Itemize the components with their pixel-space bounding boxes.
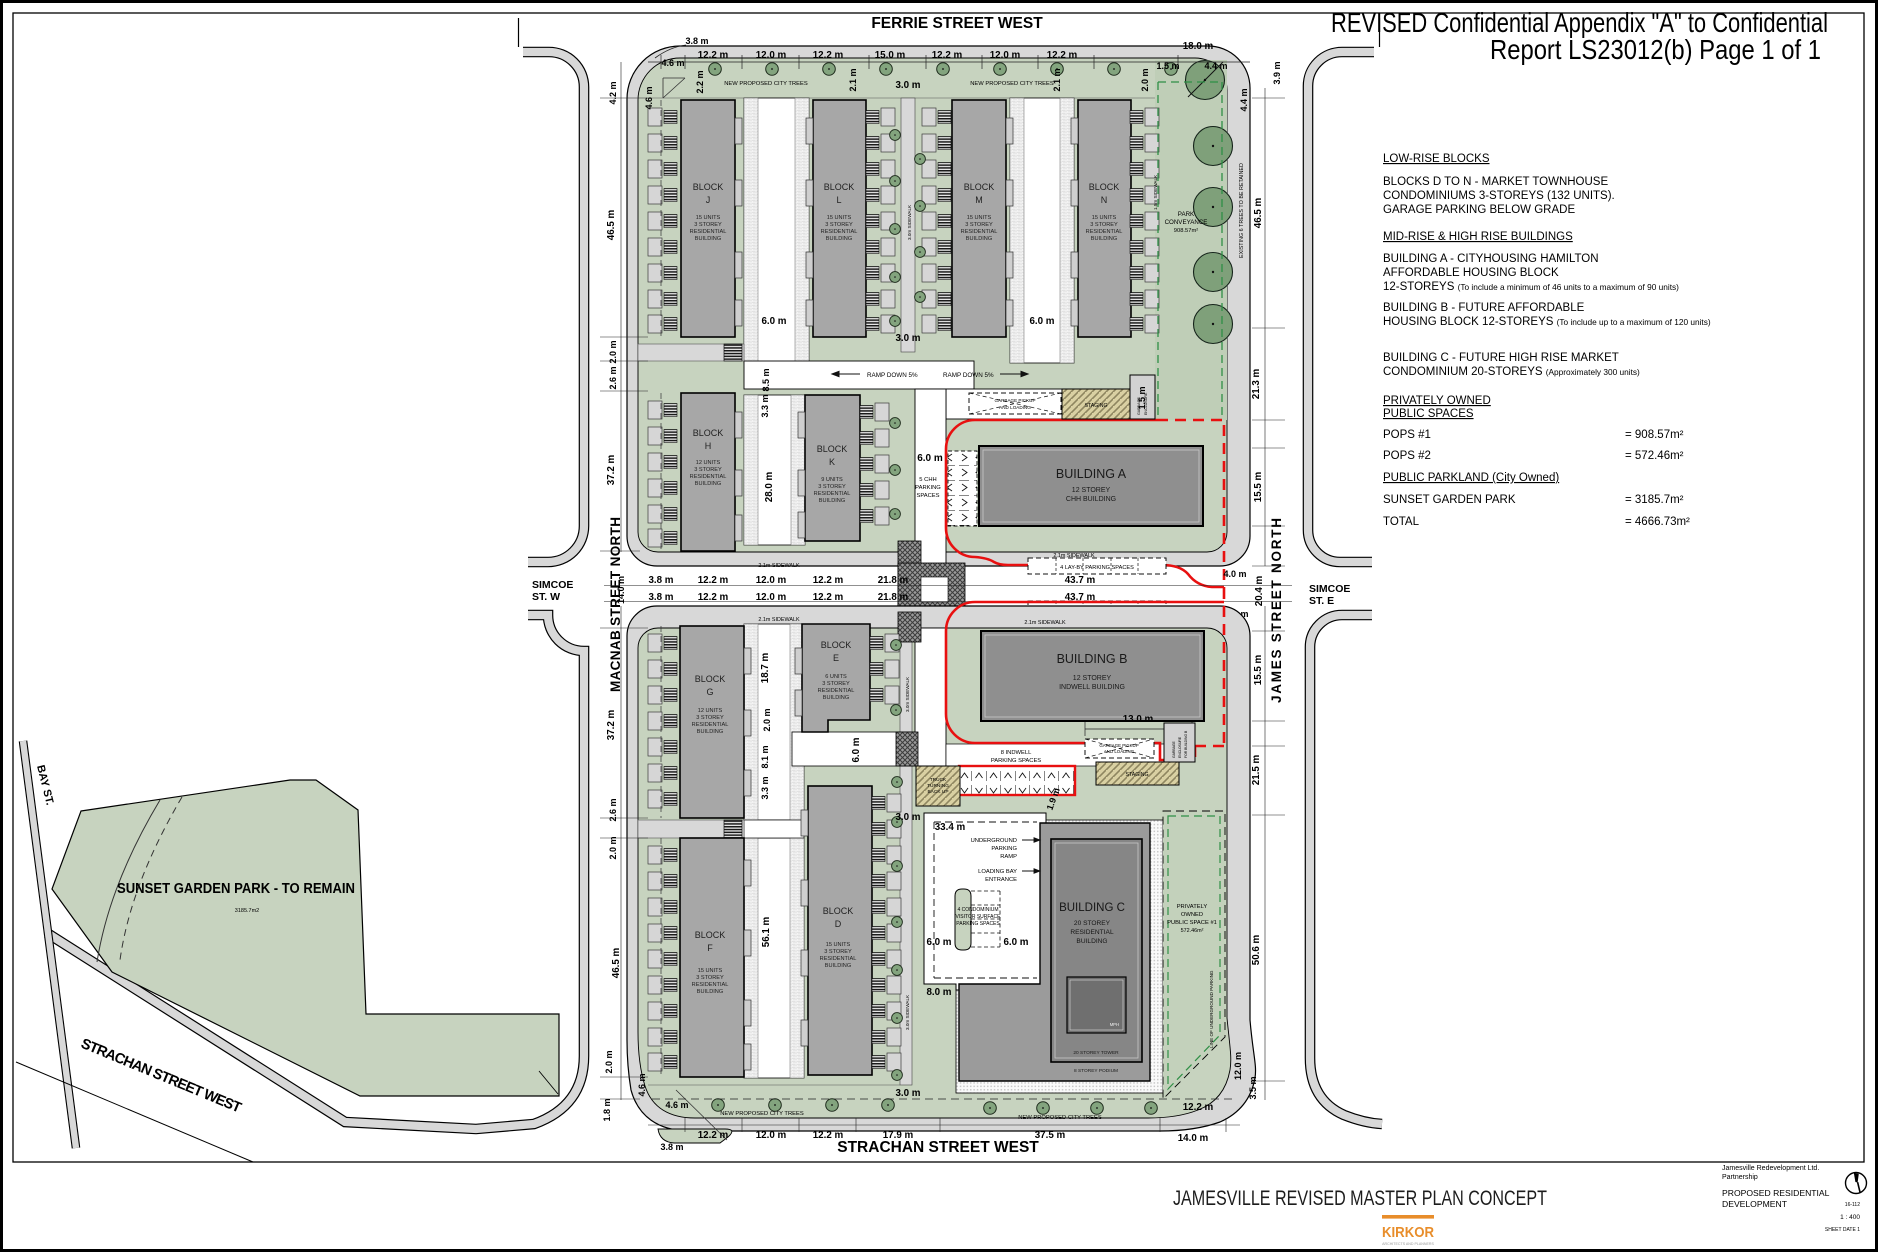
svg-text:CONVEYANCE: CONVEYANCE <box>1165 219 1208 226</box>
svg-text:21.3 m: 21.3 m <box>1251 368 1262 399</box>
svg-text:FOR BUILDING B: FOR BUILDING B <box>1184 730 1188 758</box>
svg-text:BUILDING: BUILDING <box>697 729 723 735</box>
svg-text:6.0 m: 6.0 m <box>917 453 943 464</box>
svg-text:12-STOREYS (To include a minim: 12-STOREYS (To include a minimum of 46 u… <box>1383 281 1679 293</box>
svg-text:3.0 m: 3.0 m <box>895 80 920 91</box>
svg-text:20 STOREY TOWER: 20 STOREY TOWER <box>1073 1050 1119 1056</box>
svg-text:6 UNITS: 6 UNITS <box>825 674 847 680</box>
svg-text:8.5 m: 8.5 m <box>761 368 771 391</box>
svg-text:PUBLIC SPACES: PUBLIC SPACES <box>1383 408 1474 420</box>
svg-text:RAMP DOWN 5%: RAMP DOWN 5% <box>943 372 994 379</box>
svg-text:9 UNITS: 9 UNITS <box>821 477 843 483</box>
svg-text:ENTRANCE: ENTRANCE <box>985 877 1017 883</box>
svg-text:RESIDENTIAL: RESIDENTIAL <box>814 491 851 497</box>
svg-text:4 CONDOMINIUM: 4 CONDOMINIUM <box>957 907 998 913</box>
svg-text:SIMCOE: SIMCOE <box>1309 583 1350 595</box>
svg-text:BUILDING: BUILDING <box>825 963 851 969</box>
svg-text:37.5 m: 37.5 m <box>1035 1130 1066 1141</box>
svg-text:BUILDING: BUILDING <box>1091 236 1117 242</box>
svg-text:15.5 m: 15.5 m <box>1253 654 1264 685</box>
svg-text:3.0m SIDEWALK: 3.0m SIDEWALK <box>907 204 912 240</box>
svg-text:2.1m SIDEWALK: 2.1m SIDEWALK <box>758 617 800 623</box>
svg-text:3 STOREY: 3 STOREY <box>696 975 724 981</box>
svg-text:POPS #2: POPS #2 <box>1383 450 1431 462</box>
svg-text:14.0 m: 14.0 m <box>616 576 626 604</box>
svg-text:SUNSET GARDEN PARK - TO REMAIN: SUNSET GARDEN PARK - TO REMAIN <box>117 881 355 897</box>
svg-text:6.0 m: 6.0 m <box>1029 316 1054 327</box>
svg-text:HOUSING BLOCK 12-STOREYS (To i: HOUSING BLOCK 12-STOREYS (To include up … <box>1383 316 1711 328</box>
svg-text:MPH: MPH <box>1110 1022 1119 1027</box>
svg-text:2.1 m: 2.1 m <box>1052 68 1062 91</box>
svg-text:3 STOREY: 3 STOREY <box>822 681 850 687</box>
svg-text:12.2 m: 12.2 m <box>698 575 729 586</box>
svg-text:TOTAL: TOTAL <box>1383 516 1420 528</box>
svg-text:POPS #1: POPS #1 <box>1383 429 1431 441</box>
svg-text:J: J <box>706 195 711 205</box>
svg-text:= 908.57m²: = 908.57m² <box>1625 429 1684 441</box>
svg-text:BLOCK: BLOCK <box>693 428 724 438</box>
svg-text:BLOCKS D TO N - MARKET TOWNHOU: BLOCKS D TO N - MARKET TOWNHOUSE <box>1383 176 1608 188</box>
svg-text:H: H <box>705 441 712 451</box>
svg-text:2.0 m: 2.0 m <box>604 1050 614 1073</box>
svg-text:2.1m SIDEWALK: 2.1m SIDEWALK <box>1024 620 1066 626</box>
svg-text:6.0 m: 6.0 m <box>761 316 786 327</box>
svg-text:AND LOADING: AND LOADING <box>1104 749 1135 754</box>
svg-text:BUILDING: BUILDING <box>695 481 721 487</box>
svg-text:15.5 m: 15.5 m <box>1253 471 1264 502</box>
svg-text:2.0 m: 2.0 m <box>608 340 618 363</box>
svg-text:3.3 m: 3.3 m <box>760 394 770 417</box>
svg-text:21.8 m: 21.8 m <box>878 575 909 586</box>
svg-text:15 UNITS: 15 UNITS <box>826 942 851 948</box>
svg-text:3.8 m: 3.8 m <box>648 592 673 603</box>
svg-text:3.8 m: 3.8 m <box>660 1142 683 1152</box>
svg-text:RESIDENTIAL: RESIDENTIAL <box>820 956 857 962</box>
svg-text:STAGING: STAGING <box>1126 772 1149 778</box>
svg-text:DEVELOPMENT: DEVELOPMENT <box>1722 1199 1788 1209</box>
svg-text:BLOCK: BLOCK <box>824 182 855 192</box>
svg-text:1.5 m: 1.5 m <box>1156 61 1179 71</box>
svg-text:GARBAGE: GARBAGE <box>1172 740 1176 758</box>
svg-text:CHH BUILDING: CHH BUILDING <box>1066 496 1116 503</box>
svg-text:L: L <box>836 195 841 205</box>
svg-text:RESIDENTIAL: RESIDENTIAL <box>692 722 729 728</box>
svg-text:BLOCK: BLOCK <box>693 182 724 192</box>
svg-text:2.0 m: 2.0 m <box>762 708 772 731</box>
svg-text:3 STOREY: 3 STOREY <box>824 949 852 955</box>
svg-text:M: M <box>975 195 983 205</box>
svg-text:3.9 m: 3.9 m <box>1272 61 1282 84</box>
svg-text:BLOCK: BLOCK <box>821 640 852 650</box>
svg-text:37.2 m: 37.2 m <box>606 454 617 485</box>
svg-text:RESIDENTIAL: RESIDENTIAL <box>690 474 727 480</box>
svg-text:3185.7m2: 3185.7m2 <box>235 908 259 914</box>
svg-text:ENCLOSURE: ENCLOSURE <box>1178 736 1182 758</box>
svg-text:2.0 m: 2.0 m <box>608 836 618 859</box>
svg-text:12.0 m: 12.0 m <box>990 50 1021 61</box>
svg-text:CONDOMINIUM 20-STOREYS (Approx: CONDOMINIUM 20-STOREYS (Approximately 30… <box>1383 366 1640 378</box>
svg-text:BLOCK: BLOCK <box>695 930 726 940</box>
svg-text:N: N <box>1101 195 1108 205</box>
svg-text:20.4 m: 20.4 m <box>1254 575 1265 606</box>
svg-text:15 UNITS: 15 UNITS <box>696 215 721 221</box>
svg-text:RESIDENTIAL: RESIDENTIAL <box>1086 229 1123 235</box>
svg-text:20 STOREY: 20 STOREY <box>1074 920 1111 927</box>
svg-text:8 STOREY PODIUM: 8 STOREY PODIUM <box>1074 1068 1118 1074</box>
svg-text:15 UNITS: 15 UNITS <box>698 968 723 974</box>
svg-text:15 UNITS: 15 UNITS <box>967 215 992 221</box>
svg-text:3.0 m: 3.0 m <box>895 812 920 823</box>
svg-text:3 STOREY: 3 STOREY <box>825 222 853 228</box>
svg-text:BUILDING A - CITYHOUSING HAMIL: BUILDING A - CITYHOUSING HAMILTON <box>1383 253 1599 265</box>
svg-text:BUILDING: BUILDING <box>823 695 849 701</box>
svg-text:LINE OF UNDERGROUND PARKING: LINE OF UNDERGROUND PARKING <box>1209 970 1214 1048</box>
svg-text:PARKING SPACES: PARKING SPACES <box>956 921 1000 927</box>
svg-text:12.2 m: 12.2 m <box>698 1130 729 1141</box>
svg-text:2.0 m: 2.0 m <box>1140 68 1150 91</box>
svg-text:JAMESVILLE REVISED MASTER PLAN: JAMESVILLE REVISED MASTER PLAN CONCEPT <box>1173 1186 1547 1210</box>
svg-text:15.0 m: 15.0 m <box>875 50 906 61</box>
svg-text:BLOCK: BLOCK <box>817 444 848 454</box>
svg-text:12.0 m: 12.0 m <box>756 592 787 603</box>
svg-text:RAMP DOWN 5%: RAMP DOWN 5% <box>867 372 918 379</box>
svg-text:RAMP: RAMP <box>1000 854 1017 860</box>
svg-text:3.0m SIDEWALK: 3.0m SIDEWALK <box>905 994 910 1030</box>
svg-text:1.5m SIDEWALK: 1.5m SIDEWALK <box>1153 174 1158 210</box>
svg-text:18.7 m: 18.7 m <box>760 652 771 683</box>
svg-text:1.8 m: 1.8 m <box>602 1098 612 1121</box>
svg-text:3.8 m: 3.8 m <box>685 36 708 46</box>
svg-text:2.2 m: 2.2 m <box>695 70 705 93</box>
svg-text:RESIDENTIAL: RESIDENTIAL <box>821 229 858 235</box>
svg-text:Partnership: Partnership <box>1722 1174 1758 1181</box>
svg-text:8.1 m: 8.1 m <box>760 745 770 768</box>
svg-text:2.1m SIDEWALK: 2.1m SIDEWALK <box>758 563 800 569</box>
svg-text:4.4 m: 4.4 m <box>1239 88 1249 111</box>
svg-text:BUILDING A: BUILDING A <box>1056 467 1127 481</box>
svg-text:1.5 m: 1.5 m <box>1137 386 1147 409</box>
svg-text:BUILDING: BUILDING <box>697 989 723 995</box>
svg-text:F: F <box>707 943 713 953</box>
svg-text:12.2 m: 12.2 m <box>698 592 729 603</box>
svg-text:12 UNITS: 12 UNITS <box>698 708 723 714</box>
svg-text:BUILDING: BUILDING <box>695 236 721 242</box>
svg-text:46.5 m: 46.5 m <box>606 209 617 240</box>
svg-text:BLOCK: BLOCK <box>823 906 854 916</box>
svg-text:28.0 m: 28.0 m <box>764 471 775 502</box>
svg-text:K: K <box>829 457 835 467</box>
svg-text:TURNING: TURNING <box>927 783 949 789</box>
svg-text:NEW PROPOSED CITY TREES: NEW PROPOSED CITY TREES <box>970 81 1054 87</box>
svg-text:RESIDENTIAL: RESIDENTIAL <box>690 229 727 235</box>
svg-text:1 : 400: 1 : 400 <box>1840 1214 1860 1221</box>
svg-text:6.0 m: 6.0 m <box>926 937 951 948</box>
svg-text:2.6 m: 2.6 m <box>608 366 618 389</box>
svg-text:PRIVATELY: PRIVATELY <box>1177 904 1208 910</box>
svg-text:3 STOREY: 3 STOREY <box>818 484 846 490</box>
svg-text:Jamesville Redevelopment Ltd.: Jamesville Redevelopment Ltd. <box>1722 1165 1819 1172</box>
svg-text:BLOCK: BLOCK <box>964 182 995 192</box>
svg-text:BLOCK: BLOCK <box>695 674 726 684</box>
svg-text:RESIDENTIAL: RESIDENTIAL <box>818 688 855 694</box>
svg-text:SHEET DATE 1: SHEET DATE 1 <box>1825 1227 1860 1233</box>
svg-text:8 INDWELL: 8 INDWELL <box>1001 750 1032 756</box>
svg-text:BLOCK: BLOCK <box>1089 182 1120 192</box>
svg-text:CONDOMINIUMS 3-STOREYS (132 UN: CONDOMINIUMS 3-STOREYS (132 UNITS). <box>1383 190 1615 202</box>
svg-text:4.6 m: 4.6 m <box>637 1073 647 1096</box>
svg-text:3.0 m: 3.0 m <box>895 1088 920 1099</box>
svg-text:BUILDING: BUILDING <box>966 236 992 242</box>
svg-text:12.2 m: 12.2 m <box>698 50 729 61</box>
svg-text:KIRKOR: KIRKOR <box>1382 1225 1434 1241</box>
svg-text:2.6 m: 2.6 m <box>608 798 618 821</box>
svg-text:BACK UP: BACK UP <box>927 789 948 795</box>
svg-text:4.0 m: 4.0 m <box>1223 569 1246 579</box>
svg-text:SPACES: SPACES <box>916 493 939 499</box>
svg-text:12.0 m: 12.0 m <box>756 1130 787 1141</box>
svg-text:E: E <box>833 653 839 663</box>
svg-text:BUILDING C: BUILDING C <box>1059 902 1125 914</box>
svg-text:Report LS23012(b) Page 1 of 1: Report LS23012(b) Page 1 of 1 <box>1490 34 1821 65</box>
svg-text:PARKING SPACES: PARKING SPACES <box>991 758 1041 764</box>
svg-text:17.9 m: 17.9 m <box>883 1130 914 1141</box>
svg-text:STRACHAN STREET WEST: STRACHAN STREET WEST <box>837 1139 1039 1156</box>
svg-text:RESIDENTIAL: RESIDENTIAL <box>692 982 729 988</box>
svg-text:3 STOREY: 3 STOREY <box>965 222 993 228</box>
svg-text:908.57m²: 908.57m² <box>1174 228 1199 234</box>
svg-text:= 572.46m²: = 572.46m² <box>1625 450 1684 462</box>
svg-text:= 3185.7m²: = 3185.7m² <box>1625 494 1684 506</box>
svg-text:4 LAY-BY PARKING SPACES: 4 LAY-BY PARKING SPACES <box>1060 565 1134 571</box>
svg-text:G: G <box>706 687 713 697</box>
svg-text:GARBAGE PICKUP: GARBAGE PICKUP <box>994 398 1035 403</box>
svg-text:13.0 m: 13.0 m <box>1123 714 1154 725</box>
svg-text:PARKING: PARKING <box>915 485 941 491</box>
svg-text:3 STOREY: 3 STOREY <box>1090 222 1118 228</box>
svg-text:14.0 m: 14.0 m <box>1178 1133 1209 1144</box>
svg-text:8.0 m: 8.0 m <box>926 987 951 998</box>
svg-text:PARKING: PARKING <box>991 846 1017 852</box>
svg-text:12 STOREY: 12 STOREY <box>1072 487 1111 494</box>
svg-text:BUILDING: BUILDING <box>819 498 845 504</box>
svg-text:21.5 m: 21.5 m <box>1251 754 1262 785</box>
svg-text:GARAGE PARKING BELOW GRADE: GARAGE PARKING BELOW GRADE <box>1383 204 1575 216</box>
svg-text:PUBLIC SPACE #1: PUBLIC SPACE #1 <box>1167 920 1217 926</box>
svg-text:15 UNITS: 15 UNITS <box>1092 215 1117 221</box>
svg-text:D: D <box>835 919 842 929</box>
svg-text:2.1 m: 2.1 m <box>848 68 858 91</box>
svg-text:4.6 m: 4.6 m <box>665 1100 688 1110</box>
svg-text:12.2 m: 12.2 m <box>813 50 844 61</box>
svg-text:OWNED: OWNED <box>1181 912 1203 918</box>
svg-text:16-112: 16-112 <box>1845 1202 1860 1208</box>
svg-text:21.8 m: 21.8 m <box>878 592 909 603</box>
svg-text:TRUCK: TRUCK <box>930 777 947 783</box>
svg-text:BUILDING: BUILDING <box>826 236 852 242</box>
svg-text:PRIVATELY OWNED: PRIVATELY OWNED <box>1383 395 1491 407</box>
svg-text:12 STOREY: 12 STOREY <box>1073 675 1112 682</box>
svg-text:NEW PROPOSED CITY TREES: NEW PROPOSED CITY TREES <box>1018 1115 1102 1121</box>
svg-text:RESIDENTIAL: RESIDENTIAL <box>1070 929 1114 936</box>
svg-text:12 UNITS: 12 UNITS <box>696 460 721 466</box>
svg-text:3 STOREY: 3 STOREY <box>694 222 722 228</box>
svg-text:UNDERGROUND: UNDERGROUND <box>971 838 1017 844</box>
svg-text:VISITOR SURFACE: VISITOR SURFACE <box>956 914 1002 920</box>
svg-text:12.2 m: 12.2 m <box>932 50 963 61</box>
svg-text:AFFORDABLE HOUSING BLOCK: AFFORDABLE HOUSING BLOCK <box>1383 267 1559 279</box>
svg-text:MID-RISE & HIGH RISE BUILDINGS: MID-RISE & HIGH RISE BUILDINGS <box>1383 231 1573 243</box>
svg-text:BUILDING C - FUTURE HIGH RISE: BUILDING C - FUTURE HIGH RISE MARKET <box>1383 352 1619 364</box>
svg-text:INDWELL BUILDING: INDWELL BUILDING <box>1059 684 1125 691</box>
svg-text:12.2 m: 12.2 m <box>1047 50 1078 61</box>
svg-text:NEW PROPOSED CITY TREES: NEW PROPOSED CITY TREES <box>720 1111 804 1117</box>
svg-text:6.0 m: 6.0 m <box>851 737 862 762</box>
svg-text:PARK: PARK <box>1178 211 1195 218</box>
svg-text:STAGING: STAGING <box>1085 403 1108 409</box>
svg-text:BUILDING B: BUILDING B <box>1057 652 1128 666</box>
svg-text:GARBAGE PICKUP: GARBAGE PICKUP <box>1099 743 1138 748</box>
svg-text:3.0 m: 3.0 m <box>895 333 920 344</box>
svg-text:3.5 m: 3.5 m <box>1248 1076 1258 1099</box>
svg-text:18.0 m: 18.0 m <box>1183 41 1214 52</box>
svg-text:4.4 m: 4.4 m <box>1204 61 1227 71</box>
svg-text:ST. W: ST. W <box>532 591 560 603</box>
svg-text:SIMCOE: SIMCOE <box>532 579 573 591</box>
svg-text:BUILDING: BUILDING <box>1076 938 1107 945</box>
svg-text:37.2 m: 37.2 m <box>606 709 617 740</box>
svg-text:572.46m²: 572.46m² <box>1181 928 1204 934</box>
svg-text:BUILDING B - FUTURE AFFORDABLE: BUILDING B - FUTURE AFFORDABLE <box>1383 302 1585 314</box>
svg-text:56.1 m: 56.1 m <box>761 916 772 947</box>
svg-text:LOADING BAY: LOADING BAY <box>978 869 1017 875</box>
svg-text:4.6 m: 4.6 m <box>661 58 684 68</box>
svg-text:LOW-RISE BLOCKS: LOW-RISE BLOCKS <box>1383 153 1490 165</box>
svg-text:46.5 m: 46.5 m <box>611 947 622 978</box>
svg-text:PROPOSED RESIDENTIAL: PROPOSED RESIDENTIAL <box>1722 1188 1830 1198</box>
svg-text:3 STOREY: 3 STOREY <box>694 467 722 473</box>
svg-text:12.2 m: 12.2 m <box>813 575 844 586</box>
svg-text:46.5 m: 46.5 m <box>1253 197 1264 228</box>
svg-text:12.2 m: 12.2 m <box>813 1130 844 1141</box>
svg-text:RESIDENTIAL: RESIDENTIAL <box>961 229 998 235</box>
svg-text:NEW PROPOSED CITY TREES: NEW PROPOSED CITY TREES <box>724 81 808 87</box>
svg-text:FERRIE STREET WEST: FERRIE STREET WEST <box>871 15 1043 32</box>
svg-text:50.6 m: 50.6 m <box>1251 934 1262 965</box>
svg-text:AND LOADING: AND LOADING <box>999 405 1031 410</box>
svg-text:= 4666.73m²: = 4666.73m² <box>1625 516 1690 528</box>
svg-text:3 STOREY: 3 STOREY <box>696 715 724 721</box>
svg-text:12.0 m: 12.0 m <box>756 575 787 586</box>
svg-text:12.0 m: 12.0 m <box>1233 1052 1243 1080</box>
svg-text:12.0 m: 12.0 m <box>756 50 787 61</box>
svg-text:4.2 m: 4.2 m <box>608 81 618 104</box>
svg-text:3.8 m: 3.8 m <box>648 575 673 586</box>
svg-text:12.2 m: 12.2 m <box>813 592 844 603</box>
svg-text:15 UNITS: 15 UNITS <box>827 215 852 221</box>
svg-text:EXISTING 6 TREES TO BE RETAINE: EXISTING 6 TREES TO BE RETAINED <box>1239 163 1245 258</box>
svg-text:JAMES STREET NORTH: JAMES STREET NORTH <box>1269 518 1284 703</box>
svg-text:ST. E: ST. E <box>1309 595 1334 607</box>
svg-text:PUBLIC PARKLAND (City Owned): PUBLIC PARKLAND (City Owned) <box>1383 472 1559 484</box>
svg-text:3.0m SIDEWALK: 3.0m SIDEWALK <box>905 676 910 712</box>
svg-text:5 CHH: 5 CHH <box>919 477 936 483</box>
svg-text:6.0 m: 6.0 m <box>1003 937 1028 948</box>
svg-text:3.3 m: 3.3 m <box>760 776 770 799</box>
svg-text:SUNSET GARDEN PARK: SUNSET GARDEN PARK <box>1383 494 1516 506</box>
svg-text:33.4 m: 33.4 m <box>935 822 966 833</box>
svg-text:43.7 m: 43.7 m <box>1065 575 1096 586</box>
svg-text:12.2 m: 12.2 m <box>1183 1102 1214 1113</box>
svg-text:ARCHITECTS AND PLANNERS: ARCHITECTS AND PLANNERS <box>1382 1242 1434 1246</box>
